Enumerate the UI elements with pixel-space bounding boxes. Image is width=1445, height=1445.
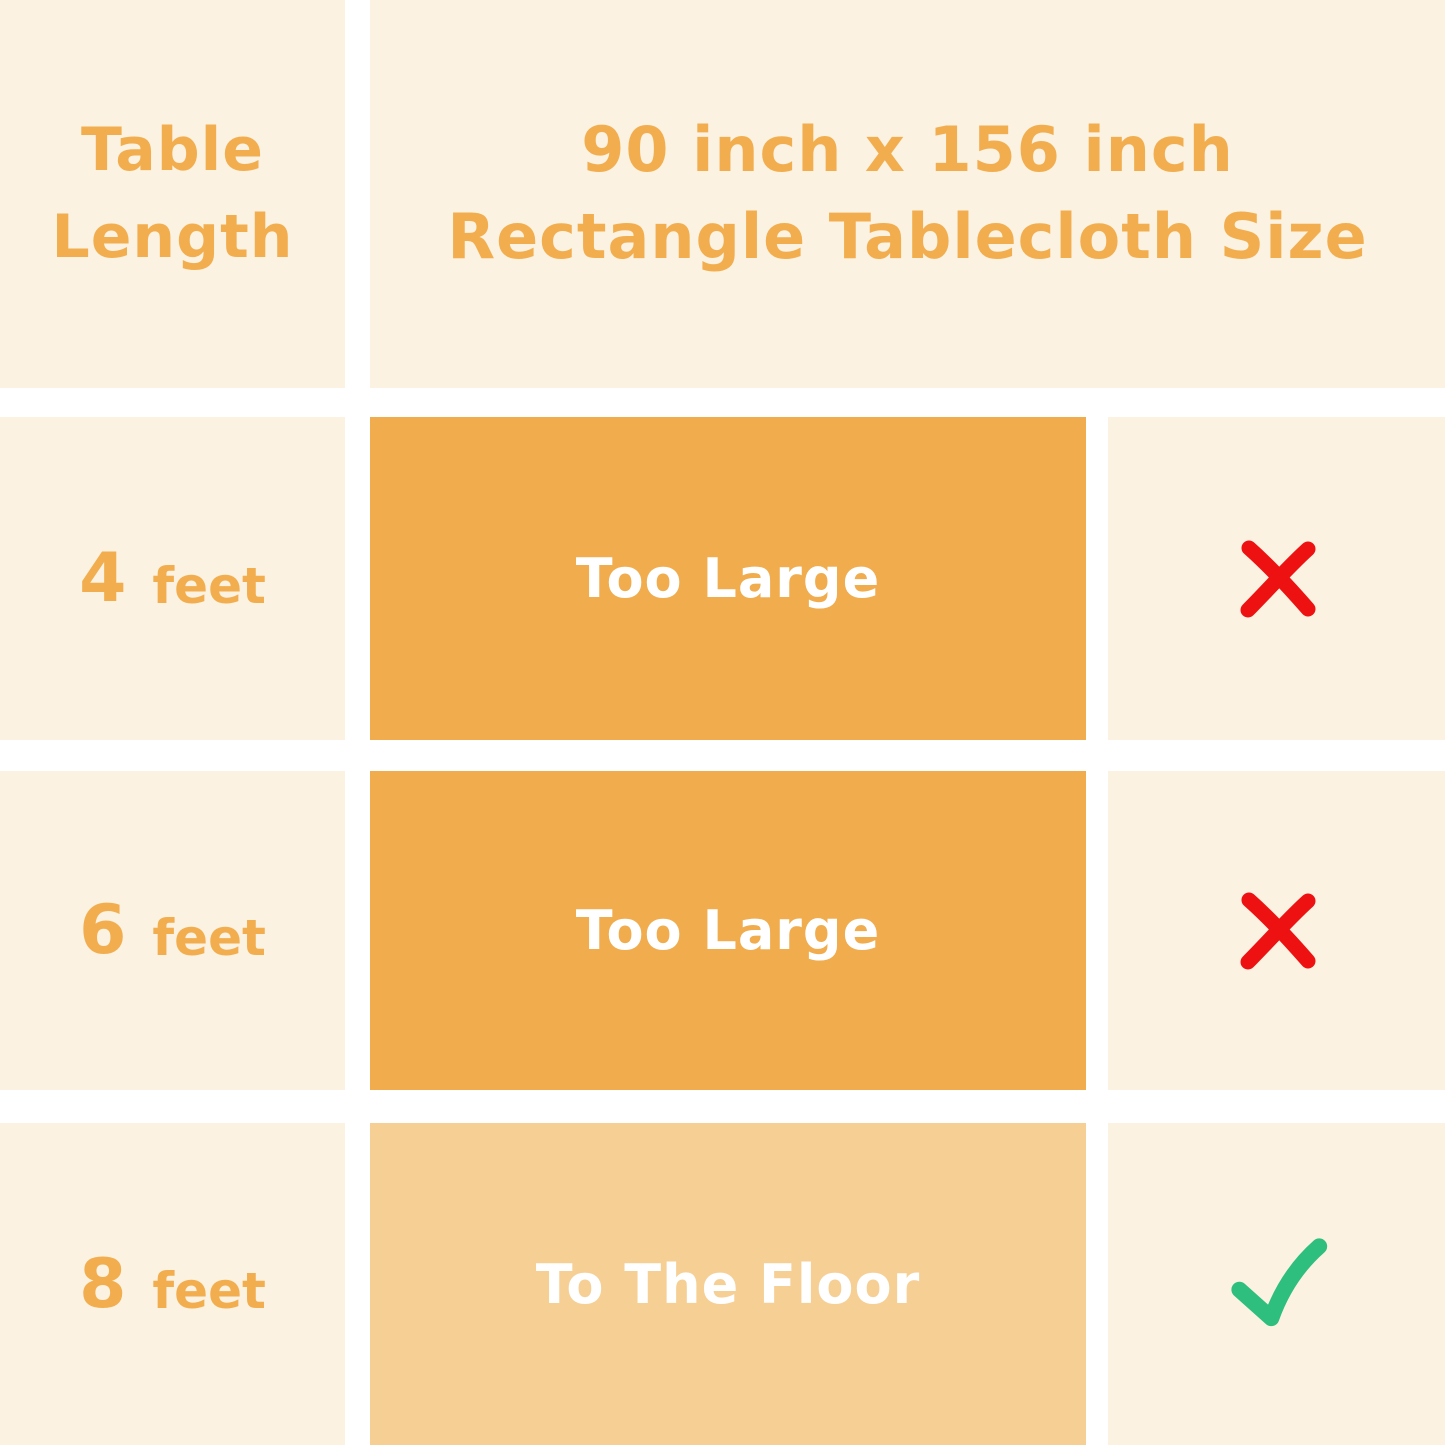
fit-bar-label: Too Large <box>576 547 880 610</box>
cross-icon <box>1227 881 1327 981</box>
fit-bar-label: Too Large <box>576 899 880 962</box>
fit-bar-label: To The Floor <box>536 1253 921 1316</box>
row-4-feet-fit-bar: Too Large <box>370 417 1086 740</box>
row-6-feet-verdict-cell <box>1108 771 1445 1090</box>
tablecloth-size-comparison-chart: Table Length 90 inch x 156 inch Rectangl… <box>0 0 1445 1445</box>
header-table-length-line1: Table <box>81 107 264 194</box>
table-length-value: 8 <box>79 1245 126 1324</box>
header-table-length-line2: Length <box>52 194 294 281</box>
row-8-feet-label: 8 feet <box>0 1123 345 1445</box>
row-4-feet-verdict-cell <box>1108 417 1445 740</box>
row-6-feet-label: 6 feet <box>0 771 345 1090</box>
cross-icon <box>1227 529 1327 629</box>
table-length-unit: feet <box>152 1248 265 1320</box>
header-tablecloth-size-line1: 90 inch x 156 inch <box>581 107 1234 194</box>
row-6-feet-fit-bar: Too Large <box>370 771 1086 1090</box>
header-tablecloth-size-line2: Rectangle Tablecloth Size <box>447 194 1367 281</box>
row-4-feet-label: 4 feet <box>0 417 345 740</box>
table-length-value: 6 <box>79 891 126 970</box>
table-length-value: 4 <box>79 539 126 618</box>
check-icon <box>1220 1227 1334 1341</box>
table-length-unit: feet <box>152 895 265 967</box>
header-table-length: Table Length <box>0 0 345 388</box>
row-8-feet-verdict-cell <box>1108 1123 1445 1445</box>
header-tablecloth-size: 90 inch x 156 inch Rectangle Tablecloth … <box>370 0 1445 388</box>
table-length-unit: feet <box>152 543 265 615</box>
row-8-feet-fit-bar: To The Floor <box>370 1123 1086 1445</box>
